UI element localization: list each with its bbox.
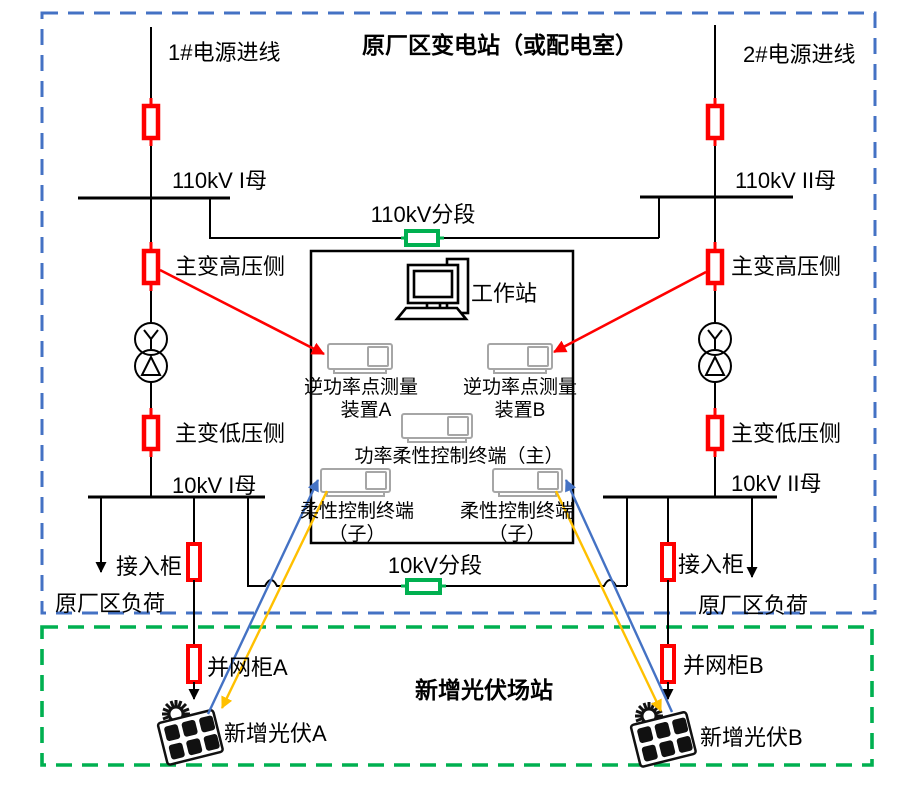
meas-b-label-line1: 逆功率点测量 — [463, 376, 577, 398]
sub-right-label-line1: 柔性控制终端 — [460, 500, 574, 522]
incoming-cabinet-breaker-left — [188, 544, 200, 580]
meas-b-label-line2: 装置B — [495, 399, 546, 421]
incoming-cabinet-right-label: 接入柜 — [678, 552, 744, 577]
sub-terminal-right-device — [493, 469, 562, 496]
plant-load-left-label: 原厂区负荷 — [55, 591, 165, 616]
transformer-right-icon — [699, 323, 731, 382]
pv-a-icon — [158, 700, 224, 765]
meas-device-a — [328, 344, 392, 373]
feeder-1-circuit — [144, 27, 158, 198]
measure-arrow-right — [554, 272, 706, 352]
master-terminal-device — [402, 414, 472, 442]
tf-lv-right-label: 主变低压侧 — [731, 421, 841, 446]
grid-cabinet-a-label: 并网柜A — [207, 655, 288, 680]
sub-terminal-left-device — [321, 469, 390, 496]
sub-left-label-line1: 柔性控制终端 — [300, 500, 414, 522]
tie-10kv-label: 10kV分段 — [388, 553, 482, 578]
tie-110kv-breaker — [406, 231, 438, 245]
tf-hv-right-label: 主变高压侧 — [731, 254, 841, 279]
meas-a-label-line1: 逆功率点测量 — [304, 376, 418, 398]
tie-110kv-label: 110kV分段 — [371, 202, 476, 227]
single-line-diagram: 原厂区变电站（或配电室） 1#电源进线 2#电源进线 110kV I母 110k… — [0, 0, 917, 785]
bus-110kv-1-label: 110kV I母 — [172, 168, 267, 193]
pv-b-downlink-arrow — [556, 491, 661, 711]
feeder-2-circuit — [708, 25, 722, 197]
feeder-2-breaker — [708, 106, 722, 138]
feeder-2-label: 2#电源进线 — [743, 42, 855, 67]
pv-b-uplink-arrow — [566, 480, 672, 712]
tf-lv-left-label: 主变低压侧 — [175, 421, 285, 446]
workstation-icon — [397, 259, 468, 319]
tf-hv-breaker-left — [144, 251, 158, 283]
tf-lv-breaker-left — [144, 417, 158, 449]
pv-a-feeder-circuit — [188, 497, 200, 699]
feeder-1-label: 1#电源进线 — [168, 40, 280, 65]
sub-left-label-line2: （子） — [328, 523, 385, 545]
tf-lv-breaker-right — [708, 417, 722, 449]
incoming-cabinet-breaker-right — [662, 544, 674, 580]
substation-title: 原厂区变电站（或配电室） — [362, 32, 638, 58]
tie-10kv-breaker — [407, 580, 440, 593]
pv-b-label: 新增光伏B — [700, 725, 803, 750]
tf-hv-left-label: 主变高压侧 — [175, 254, 285, 279]
grid-cabinet-b-label: 并网柜B — [683, 653, 764, 678]
bus-10kv-2-label: 10kV II母 — [731, 471, 821, 496]
pv-station-title: 新增光伏场站 — [415, 677, 553, 703]
pv-b-feeder-circuit — [662, 497, 674, 699]
pv-a-label: 新增光伏A — [224, 721, 327, 746]
meas-a-label-line2: 装置A — [341, 399, 392, 421]
bus-110kv-2-label: 110kV II母 — [735, 168, 836, 193]
incoming-cabinet-left-label: 接入柜 — [116, 554, 182, 579]
transformer-left-icon — [135, 323, 167, 382]
grid-cabinet-a-breaker — [188, 646, 200, 682]
grid-cabinet-b-breaker — [662, 646, 674, 682]
meas-device-b — [488, 344, 552, 373]
workstation-label: 工作站 — [471, 281, 537, 306]
feeder-1-breaker — [144, 106, 158, 138]
sub-right-label-line2: （子） — [488, 523, 545, 545]
pv-b-icon — [631, 702, 697, 767]
measure-arrow-left — [160, 270, 324, 354]
plant-load-right-label: 原厂区负荷 — [698, 593, 808, 618]
tf-hv-breaker-right — [708, 251, 722, 283]
transformer-branch-left — [135, 198, 167, 497]
bus-10kv-1-label: 10kV I母 — [172, 473, 256, 498]
master-terminal-label: 功率柔性控制终端（主） — [354, 445, 563, 467]
transformer-branch-right — [699, 197, 731, 497]
